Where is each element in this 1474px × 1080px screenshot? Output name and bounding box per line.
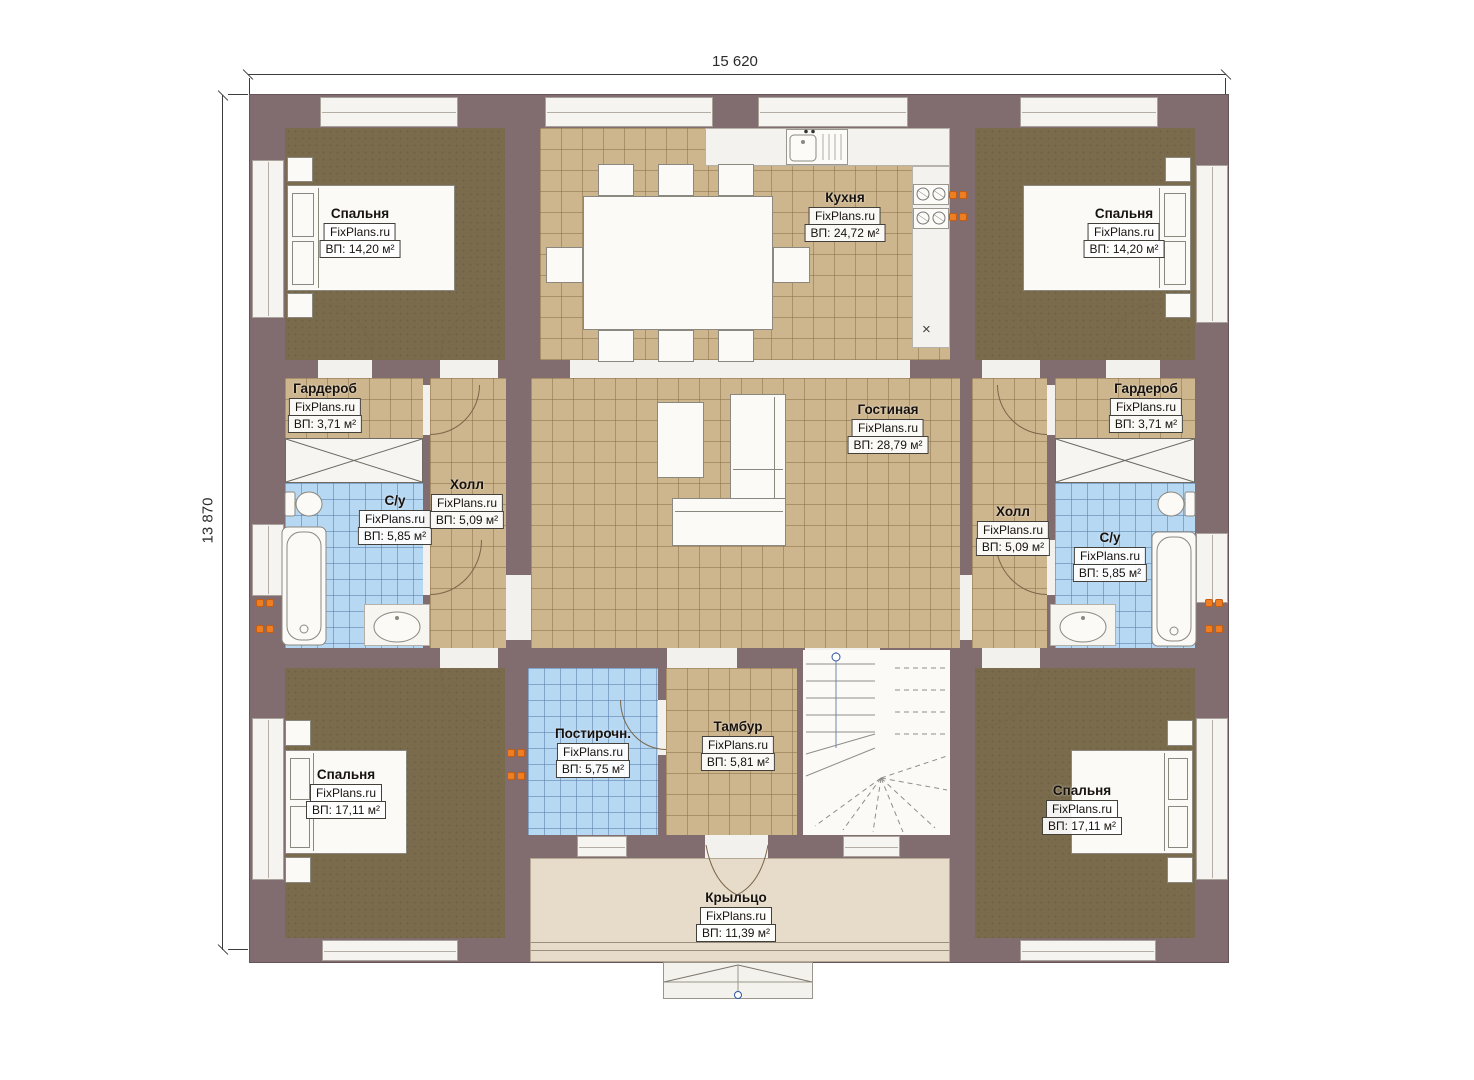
door-gap-wardrobe-left xyxy=(423,385,430,435)
watermark: FixPlans.ru xyxy=(1110,398,1182,416)
door-gap-bedroom-br xyxy=(982,648,1040,668)
socket-icon xyxy=(256,599,274,607)
room-area: ВП: 5,85 м² xyxy=(1073,564,1147,582)
extension-line xyxy=(228,94,248,95)
wardrobe-unit xyxy=(285,438,423,483)
opening-kitchen-living xyxy=(570,360,910,378)
chair xyxy=(718,164,754,196)
socket-icon xyxy=(1205,599,1223,607)
extension-line xyxy=(228,949,248,950)
door-gap-wardrobe-tl xyxy=(318,360,372,378)
room-area: ВП: 5,81 м² xyxy=(701,753,775,771)
counter-end-symbol: × xyxy=(922,322,931,337)
window xyxy=(545,97,713,127)
room-title: Спальня xyxy=(1053,783,1111,798)
floor-plan: 15 620 13 870 xyxy=(0,0,1474,1080)
room-title: Холл xyxy=(996,504,1030,519)
watermark: FixPlans.ru xyxy=(359,510,431,528)
watermark: FixPlans.ru xyxy=(1074,547,1146,565)
room-area: ВП: 3,71 м² xyxy=(288,415,362,433)
door-gap-wardrobe-right xyxy=(1047,385,1055,435)
watermark: FixPlans.ru xyxy=(310,784,382,802)
room-label-bedroom-bottom-left: Спальня FixPlans.ru ВП: 17,11 м² xyxy=(306,767,386,819)
window xyxy=(1196,533,1228,603)
window xyxy=(577,836,627,857)
room-title: Гардероб xyxy=(1114,381,1178,396)
window xyxy=(1196,165,1228,323)
room-label-living-room: Гостиная FixPlans.ru ВП: 28,79 м² xyxy=(848,402,929,454)
room-label-vestibule: Тамбур FixPlans.ru ВП: 5,81 м² xyxy=(701,719,775,771)
stove-icon xyxy=(913,184,949,230)
room-label-hall-left: Холл FixPlans.ru ВП: 5,09 м² xyxy=(430,477,504,529)
room-label-bathroom-right: С/у FixPlans.ru ВП: 5,85 м² xyxy=(1073,530,1147,582)
nightstand xyxy=(1165,293,1191,318)
extension-line xyxy=(249,78,250,94)
washbasin-icon xyxy=(1050,604,1116,646)
room-title: Спальня xyxy=(1095,206,1153,221)
window xyxy=(320,97,458,127)
room-label-wardrobe-right: Гардероб FixPlans.ru ВП: 3,71 м² xyxy=(1109,381,1183,433)
room-title: Постирочн. xyxy=(555,726,631,741)
chair xyxy=(658,330,694,362)
watermark: FixPlans.ru xyxy=(289,398,361,416)
watermark: FixPlans.ru xyxy=(702,736,774,754)
opening-hall-right-living xyxy=(960,575,972,640)
room-title: Крыльцо xyxy=(705,890,766,905)
opening-vestibule-living xyxy=(667,648,737,668)
room-label-hall-right: Холл FixPlans.ru ВП: 5,09 м² xyxy=(976,504,1050,556)
room-label-bedroom-bottom-right: Спальня FixPlans.ru ВП: 17,11 м² xyxy=(1042,783,1122,835)
dining-table xyxy=(583,196,773,330)
room-area: ВП: 14,20 м² xyxy=(1084,240,1165,258)
nightstand xyxy=(285,720,311,746)
door-gap-bedroom-tl xyxy=(440,360,498,378)
watermark: FixPlans.ru xyxy=(1046,800,1118,818)
watermark: FixPlans.ru xyxy=(431,494,503,512)
room-label-porch: Крыльцо FixPlans.ru ВП: 11,39 м² xyxy=(696,890,776,942)
nightstand xyxy=(285,857,311,883)
room-area: ВП: 14,20 м² xyxy=(320,240,401,258)
window xyxy=(252,718,284,880)
socket-icon xyxy=(949,191,967,199)
chair xyxy=(598,330,634,362)
window xyxy=(758,97,908,127)
door-gap-wardrobe-tr xyxy=(1106,360,1160,378)
room-title: С/у xyxy=(384,493,405,508)
room-title: Спальня xyxy=(317,767,375,782)
room-area: ВП: 5,09 м² xyxy=(976,538,1050,556)
room-title: Холл xyxy=(450,477,484,492)
watermark: FixPlans.ru xyxy=(324,223,396,241)
room-title: Гостиная xyxy=(857,402,918,417)
nightstand xyxy=(1167,857,1193,883)
room-label-bathroom-left: С/у FixPlans.ru ВП: 5,85 м² xyxy=(358,493,432,545)
chair xyxy=(546,247,583,283)
coffee-table xyxy=(657,402,704,478)
window xyxy=(843,836,900,857)
room-label-bedroom-top-left: Спальня FixPlans.ru ВП: 14,20 м² xyxy=(320,206,401,258)
window xyxy=(322,940,458,961)
sofa-chaise xyxy=(672,498,786,546)
room-area: ВП: 17,11 м² xyxy=(1042,817,1122,835)
chair xyxy=(773,247,810,283)
window xyxy=(252,524,284,596)
nightstand xyxy=(287,157,313,182)
window xyxy=(252,160,284,318)
wardrobe-unit xyxy=(1055,438,1195,483)
porch-steps xyxy=(663,962,813,999)
room-area: ВП: 11,39 м² xyxy=(696,924,776,942)
chair xyxy=(658,164,694,196)
socket-icon xyxy=(507,772,525,780)
porch-edge-line xyxy=(531,942,949,943)
nightstand xyxy=(1167,720,1193,746)
door-gap-bedroom-tr xyxy=(982,360,1040,378)
room-area: ВП: 5,09 м² xyxy=(430,511,504,529)
socket-icon xyxy=(1205,625,1223,633)
window xyxy=(1020,97,1158,127)
room-area: ВП: 17,11 м² xyxy=(306,801,386,819)
porch-edge-line xyxy=(531,950,949,951)
room-area: ВП: 24,72 м² xyxy=(805,224,886,242)
watermark: FixPlans.ru xyxy=(809,207,881,225)
watermark: FixPlans.ru xyxy=(852,419,924,437)
window xyxy=(1020,940,1156,961)
room-area: ВП: 5,85 м² xyxy=(358,527,432,545)
dimension-width-label: 15 620 xyxy=(712,53,758,70)
room-title: Спальня xyxy=(331,206,389,221)
nightstand xyxy=(1165,157,1191,182)
room-title: Гардероб xyxy=(293,381,357,396)
door-gap-bedroom-bl xyxy=(440,648,498,668)
opening-hall-left-living xyxy=(506,575,531,640)
watermark: FixPlans.ru xyxy=(977,521,1049,539)
room-area: ВП: 3,71 м² xyxy=(1109,415,1183,433)
room-area: ВП: 5,75 м² xyxy=(556,760,630,778)
room-label-laundry: Постирочн. FixPlans.ru ВП: 5,75 м² xyxy=(555,726,631,778)
kitchen-sink-icon xyxy=(786,129,848,165)
watermark: FixPlans.ru xyxy=(1088,223,1160,241)
socket-icon xyxy=(256,625,274,633)
room-label-bedroom-top-right: Спальня FixPlans.ru ВП: 14,20 м² xyxy=(1084,206,1165,258)
watermark: FixPlans.ru xyxy=(700,907,772,925)
room-label-kitchen: Кухня FixPlans.ru ВП: 24,72 м² xyxy=(805,190,886,242)
dimension-tick xyxy=(218,90,229,101)
dimension-height-line xyxy=(222,95,223,950)
nightstand xyxy=(287,293,313,318)
staircase xyxy=(803,650,950,835)
door-gap-bathroom-left xyxy=(423,540,430,595)
chair xyxy=(718,330,754,362)
window xyxy=(1196,718,1228,880)
chair xyxy=(598,164,634,196)
dimension-width-line xyxy=(248,74,1226,75)
extension-line xyxy=(1225,78,1226,94)
watermark: FixPlans.ru xyxy=(557,743,629,761)
socket-icon xyxy=(507,749,525,757)
room-area: ВП: 28,79 м² xyxy=(848,436,929,454)
room-title: С/у xyxy=(1099,530,1120,545)
bathtub-icon xyxy=(281,526,327,646)
bathtub-icon xyxy=(1151,531,1197,647)
room-title: Кухня xyxy=(825,190,864,205)
room-title: Тамбур xyxy=(714,719,763,734)
washbasin-icon xyxy=(364,604,430,646)
dimension-height-label: 13 870 xyxy=(200,491,217,551)
toilet-icon xyxy=(284,487,324,521)
dimension-tick xyxy=(218,944,229,955)
room-label-wardrobe-left: Гардероб FixPlans.ru ВП: 3,71 м² xyxy=(288,381,362,433)
socket-icon xyxy=(949,213,967,221)
toilet-icon xyxy=(1156,487,1196,521)
